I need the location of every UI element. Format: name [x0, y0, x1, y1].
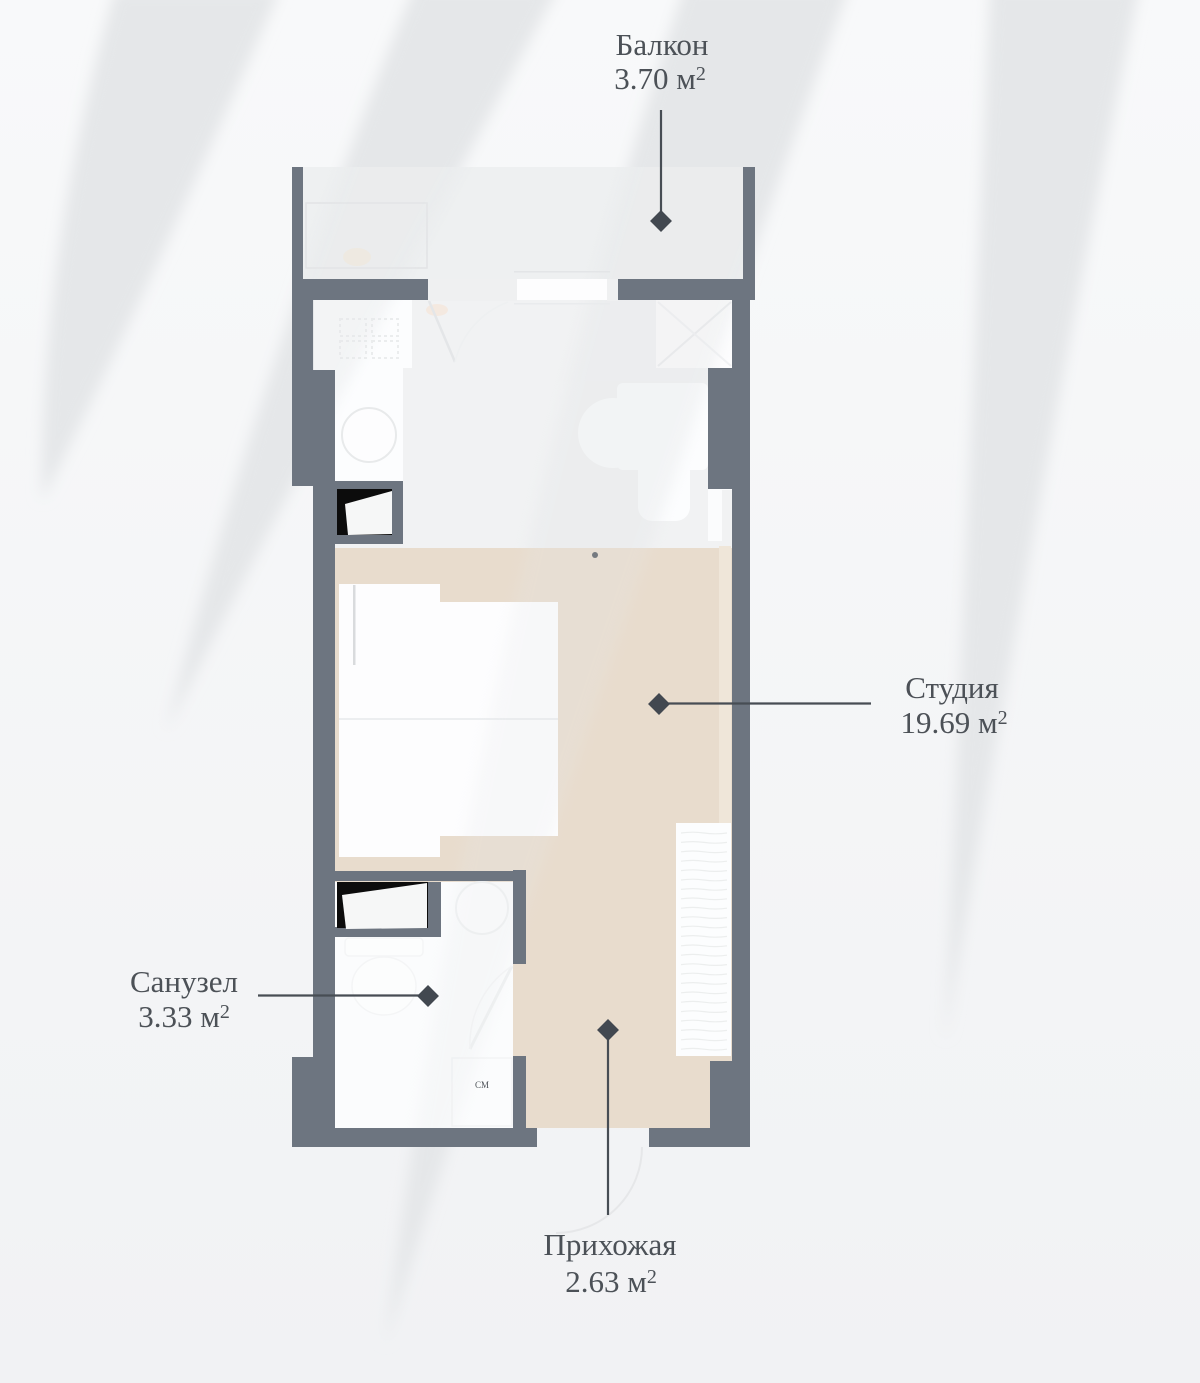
svg-text:2.63 м2: 2.63 м2 [565, 1264, 657, 1299]
svg-text:Балкон: Балкон [616, 27, 709, 62]
svg-text:Санузел: Санузел [130, 964, 238, 999]
svg-text:3.70 м2: 3.70 м2 [614, 61, 706, 96]
svg-text:Прихожая: Прихожая [544, 1227, 677, 1262]
svg-text:СМ: СМ [475, 1080, 489, 1090]
svg-text:Студия: Студия [905, 670, 999, 705]
svg-text:19.69 м2: 19.69 м2 [900, 705, 1007, 740]
svg-text:3.33 м2: 3.33 м2 [138, 999, 230, 1034]
